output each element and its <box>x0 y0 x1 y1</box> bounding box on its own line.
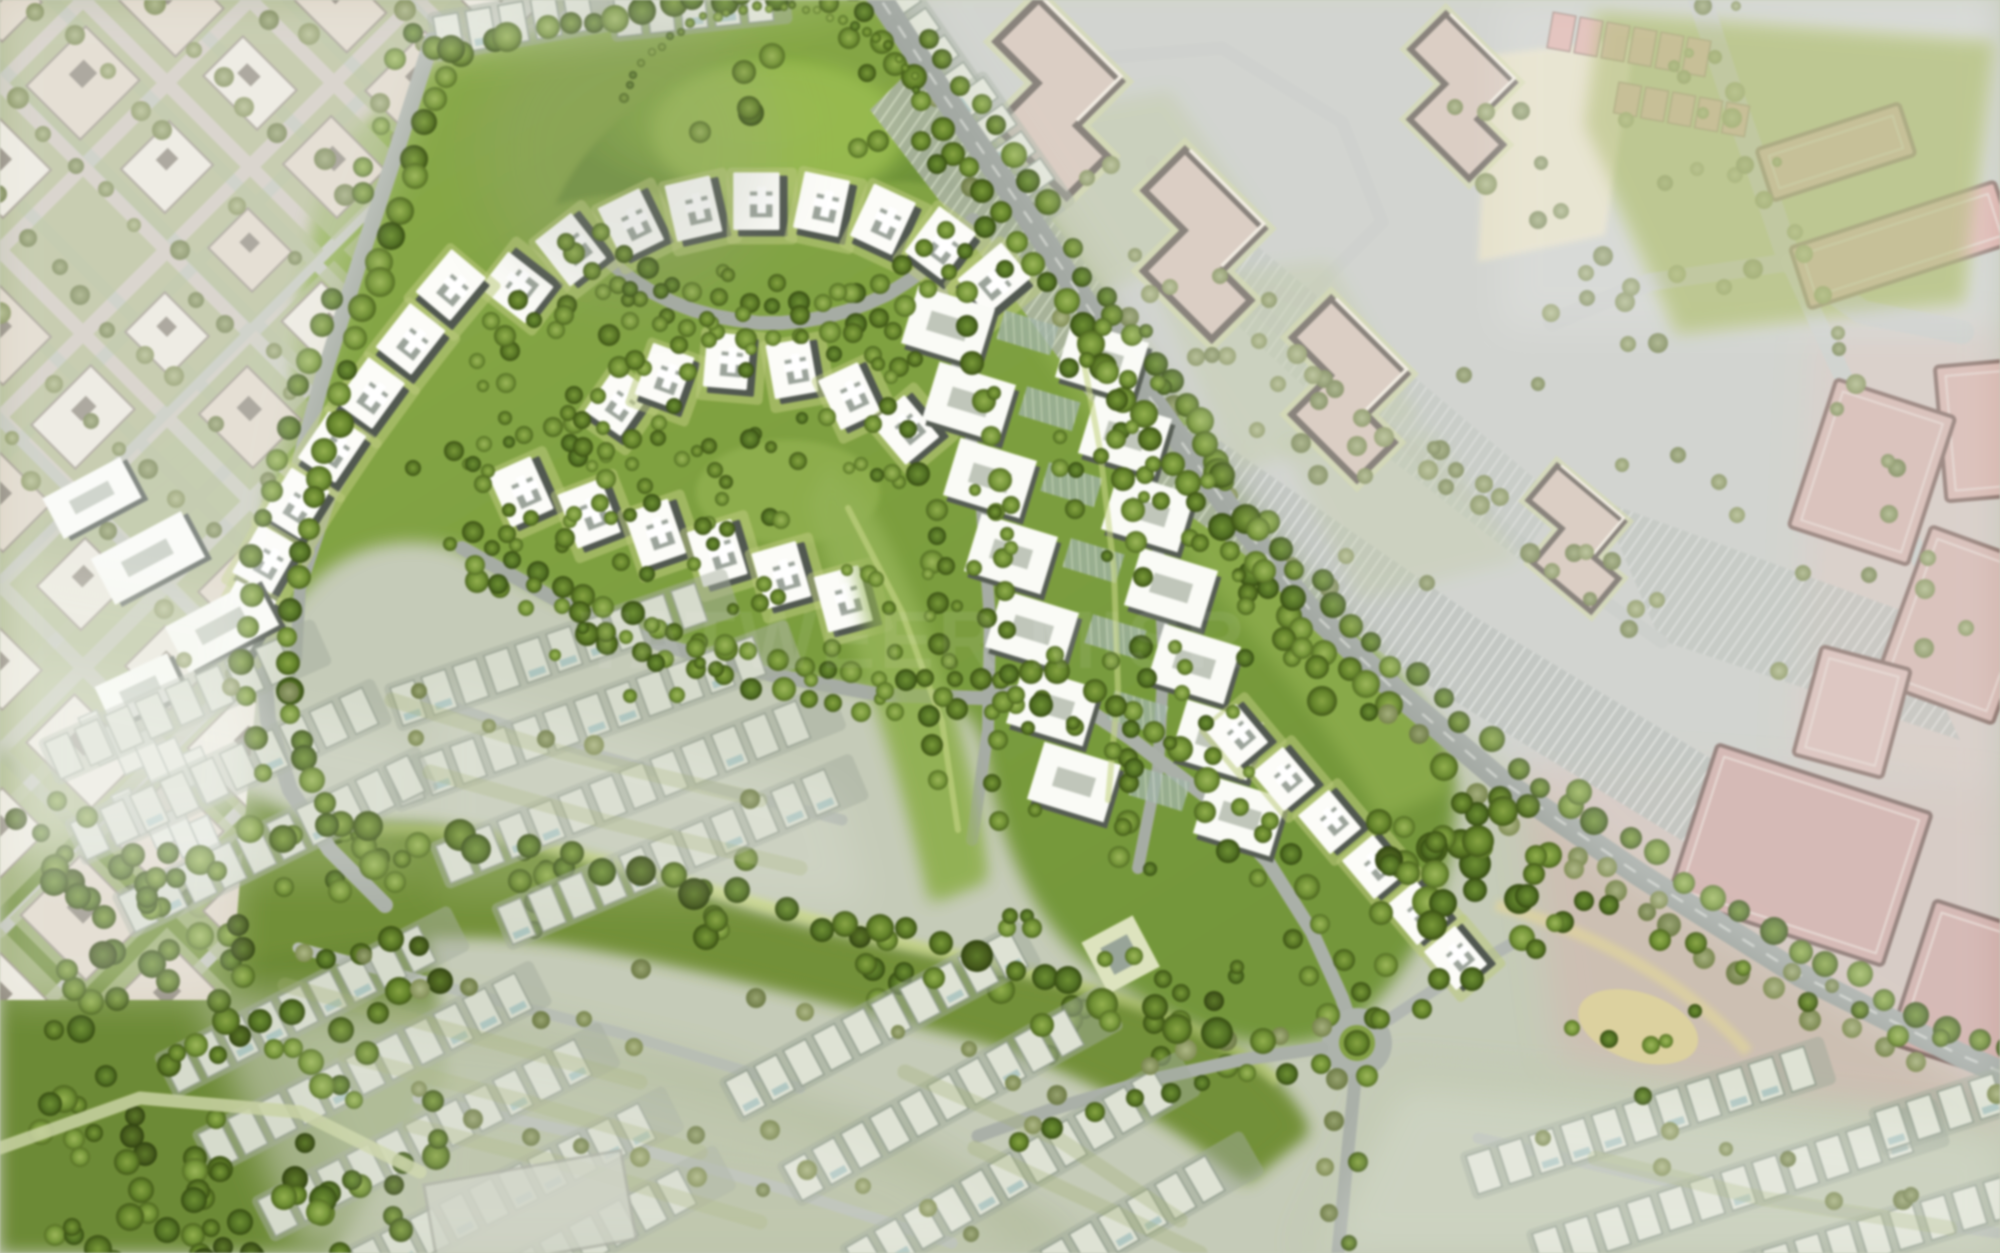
svg-text:TATWEER MISR: TATWEER MISR <box>580 595 1249 686</box>
